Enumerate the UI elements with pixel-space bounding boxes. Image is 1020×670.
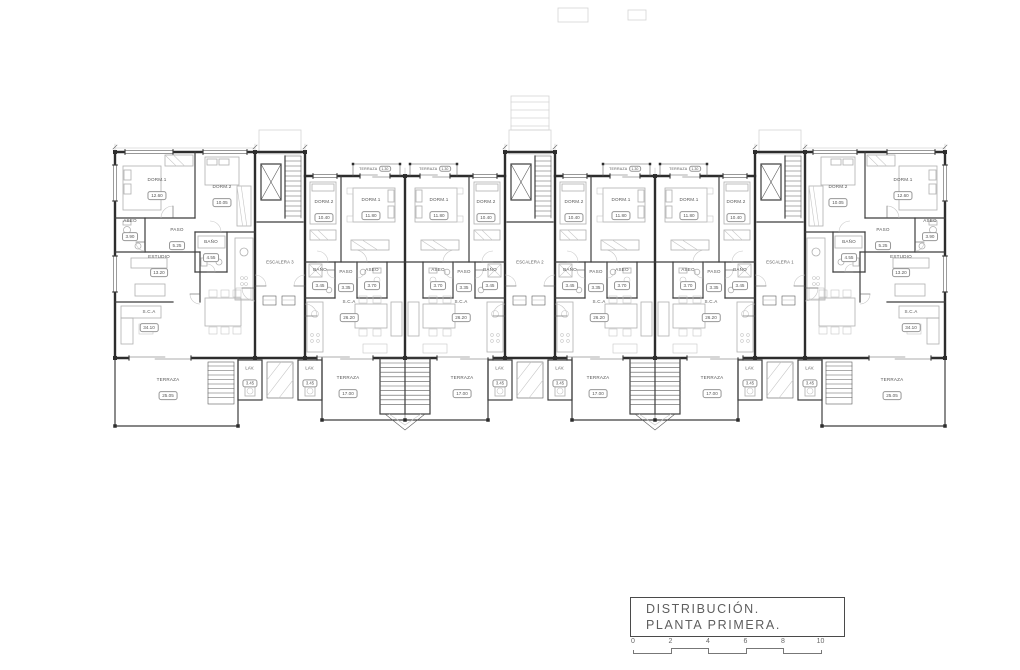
- scale-segment-1: [671, 648, 709, 649]
- scale-bar: 0246810: [633, 638, 823, 658]
- scale-tick-1: [671, 648, 672, 654]
- scale-number-0: 0: [631, 638, 635, 645]
- scale-tick-4: [783, 648, 784, 654]
- scale-tick-3: [746, 648, 747, 654]
- scale-segment-2: [708, 653, 746, 654]
- scale-number-5: 10: [817, 638, 825, 645]
- scale-segment-3: [746, 648, 784, 649]
- title-line-1: DISTRIBUCIÓN.: [646, 601, 844, 617]
- scale-endtick-0: [633, 650, 634, 654]
- scale-number-3: 6: [744, 638, 748, 645]
- scale-segment-4: [783, 653, 821, 654]
- scale-tick-2: [708, 648, 709, 654]
- scale-segment-0: [633, 653, 671, 654]
- floor-plan-page: LAV.3.45LAV.3.45LAV.3.45LAV.3.45LAV.3.45…: [0, 0, 1020, 670]
- title-block: DISTRIBUCIÓN. PLANTA PRIMERA.: [630, 597, 845, 637]
- floor-plan-svg: [0, 0, 1020, 670]
- scale-number-1: 2: [669, 638, 673, 645]
- scale-number-4: 8: [781, 638, 785, 645]
- scale-number-2: 4: [706, 638, 710, 645]
- scale-endtick-1: [821, 650, 822, 654]
- title-line-2: PLANTA PRIMERA.: [646, 617, 844, 633]
